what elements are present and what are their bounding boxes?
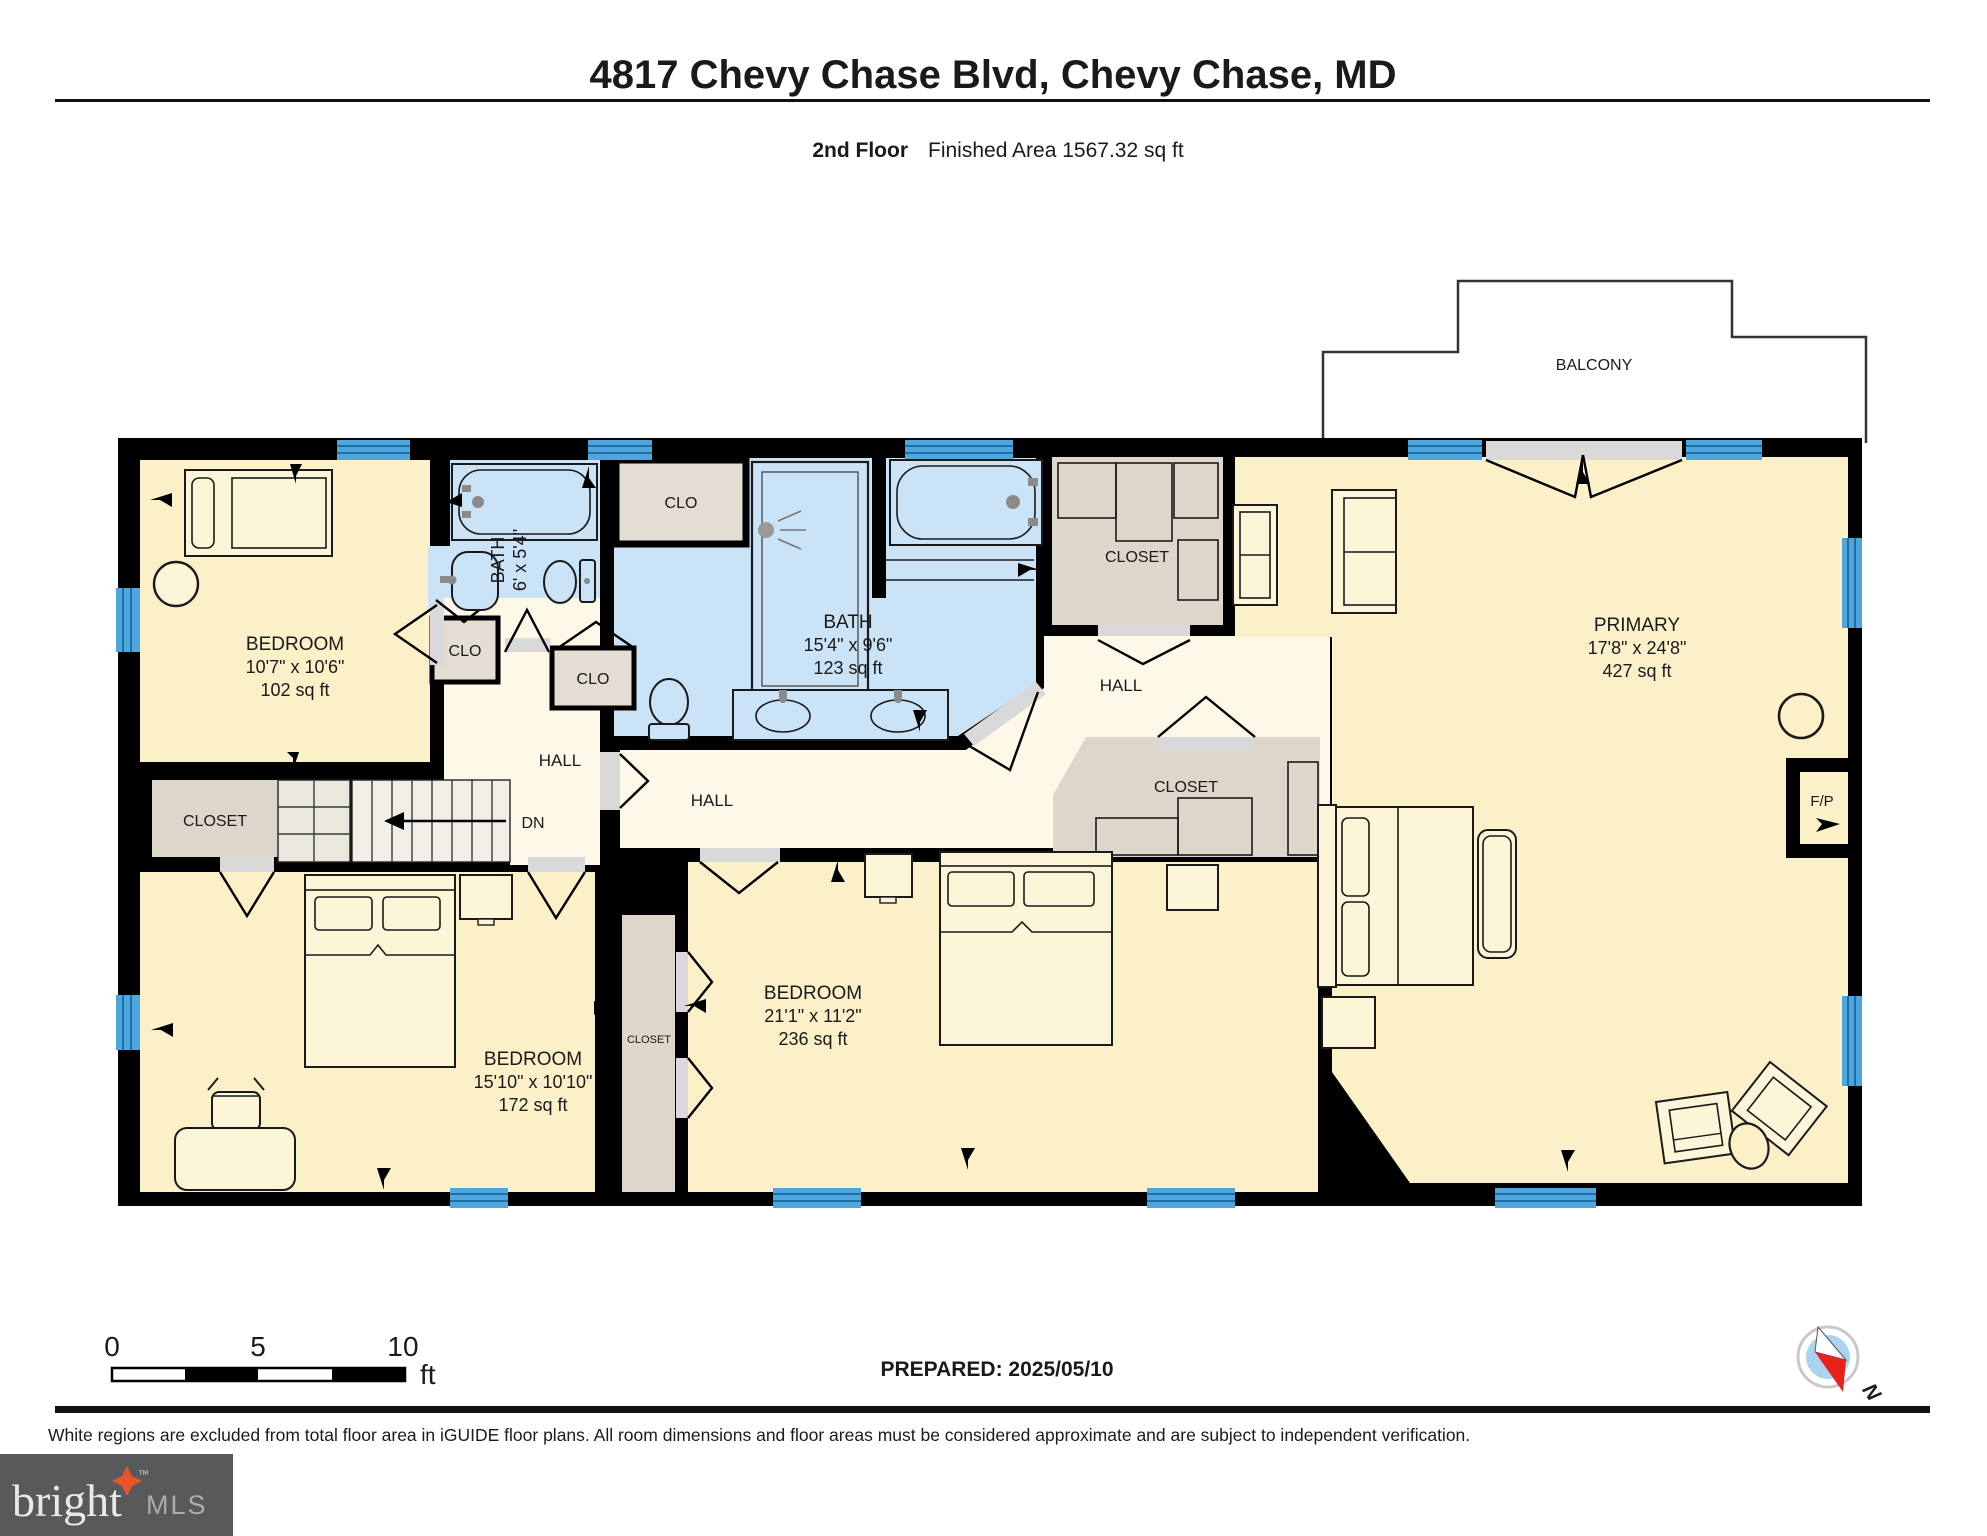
logo-tm: ™ [138, 1469, 149, 1481]
dn-label: DN [521, 815, 544, 832]
window [337, 440, 410, 460]
door-opening [430, 603, 444, 665]
closet-label: CLOSET [627, 1034, 671, 1046]
window [588, 440, 652, 460]
svg-text:PRIMARY: PRIMARY [1594, 615, 1681, 636]
door-opening [1158, 737, 1255, 750]
scale-bar: 0 5 10 ft [104, 1331, 436, 1390]
door-opening [676, 952, 688, 1012]
window [1842, 996, 1862, 1086]
balcony-label: BALCONY [1556, 357, 1633, 374]
brightmls-logo: bright ™ MLS [0, 1454, 233, 1536]
toilet [650, 679, 688, 725]
window [1842, 538, 1862, 628]
bed-double [940, 852, 1112, 1045]
header-divider [55, 99, 1930, 102]
label-bedroom-mid: BEDROOM 21'1" x 11'2" 236 sq ft [764, 983, 862, 1049]
scale-5: 5 [250, 1331, 266, 1362]
compass-icon: N [1798, 1327, 1886, 1406]
sofa [1332, 490, 1396, 613]
svg-text:21'1" x 11'2": 21'1" x 11'2" [764, 1006, 861, 1026]
window [116, 588, 140, 652]
closet-strip [622, 915, 675, 1192]
window [1495, 1188, 1596, 1208]
svg-text:17'8" x 24'8": 17'8" x 24'8" [1588, 638, 1687, 658]
closet-label: CLOSET [1105, 549, 1169, 566]
clo-label: CLO [577, 671, 610, 688]
clo-label: CLO [449, 643, 482, 660]
nightstand [865, 854, 912, 897]
closet-label: CLOSET [183, 813, 247, 830]
svg-text:15'4" x 9'6": 15'4" x 9'6" [804, 635, 893, 655]
svg-text:6' x 5'4": 6' x 5'4" [510, 529, 530, 591]
bed-double [305, 875, 455, 1067]
round-chair [154, 562, 198, 606]
svg-text:BEDROOM: BEDROOM [484, 1049, 582, 1070]
logo-suffix: MLS [146, 1490, 208, 1520]
window [116, 995, 140, 1050]
nightstand [1167, 865, 1218, 910]
footer-divider [55, 1406, 1930, 1413]
shower-head-icon [758, 522, 774, 538]
prepared-date: PREPARED: 2025/05/10 [880, 1358, 1113, 1381]
door-opening [600, 752, 620, 810]
disclaimer-text: White regions are excluded from total fl… [48, 1425, 1470, 1445]
closet-walkin-2 [1053, 737, 1320, 857]
window [450, 1188, 508, 1208]
floor-label: 2nd Floor [812, 139, 908, 162]
nightstand [1322, 997, 1375, 1048]
door-opening [220, 857, 274, 872]
clo-label: CLO [665, 495, 698, 512]
toilet [544, 561, 576, 603]
fireplace-label: F/P [1810, 793, 1833, 810]
page-title: 4817 Chevy Chase Blvd, Chevy Chase, MD [589, 53, 1396, 97]
bed-single [185, 470, 332, 556]
dresser [1233, 505, 1277, 605]
svg-text:BATH: BATH [488, 537, 508, 584]
faucet-icon [472, 496, 484, 508]
hall-label: HALL [1100, 676, 1143, 695]
door-opening [676, 1058, 688, 1118]
desk [175, 1128, 295, 1190]
door-opening [1098, 625, 1190, 636]
svg-text:10'7" x 10'6": 10'7" x 10'6" [246, 657, 345, 677]
finished-area-label: Finished Area 1567.32 sq ft [928, 139, 1184, 162]
closet-label: CLOSET [1154, 779, 1218, 796]
window [773, 1188, 861, 1208]
window [1147, 1188, 1235, 1208]
scale-10: 10 [387, 1331, 418, 1362]
door-opening [700, 848, 780, 862]
svg-text:BATH: BATH [823, 612, 872, 633]
scale-unit: ft [420, 1359, 436, 1390]
logo-brand: bright [12, 1475, 122, 1526]
hall-label: HALL [691, 791, 734, 810]
svg-text:172 sq ft: 172 sq ft [498, 1095, 567, 1115]
door-opening [528, 857, 585, 872]
armchair [1656, 1092, 1736, 1163]
svg-text:427 sq ft: 427 sq ft [1602, 661, 1671, 681]
window [1408, 440, 1482, 460]
svg-text:102 sq ft: 102 sq ft [260, 680, 329, 700]
floorplan-page: 4817 Chevy Chase Blvd, Chevy Chase, MD 2… [0, 0, 1987, 1536]
svg-text:123 sq ft: 123 sq ft [813, 658, 882, 678]
window [905, 440, 1013, 460]
faucet-icon [1006, 495, 1020, 509]
nightstand [460, 875, 512, 919]
window [1686, 440, 1762, 460]
scale-0: 0 [104, 1331, 120, 1362]
svg-text:BEDROOM: BEDROOM [246, 634, 344, 655]
bed-king [1318, 805, 1473, 987]
balcony: BALCONY [1323, 281, 1866, 443]
fireplace: F/P [1786, 758, 1862, 858]
svg-text:15'10" x 10'10": 15'10" x 10'10" [474, 1072, 593, 1092]
round-chair [1779, 694, 1823, 738]
compass-north-label: N [1858, 1379, 1886, 1405]
staircase [278, 780, 510, 862]
hall-label: HALL [539, 751, 582, 770]
svg-text:BEDROOM: BEDROOM [764, 983, 862, 1004]
svg-text:236 sq ft: 236 sq ft [778, 1029, 847, 1049]
